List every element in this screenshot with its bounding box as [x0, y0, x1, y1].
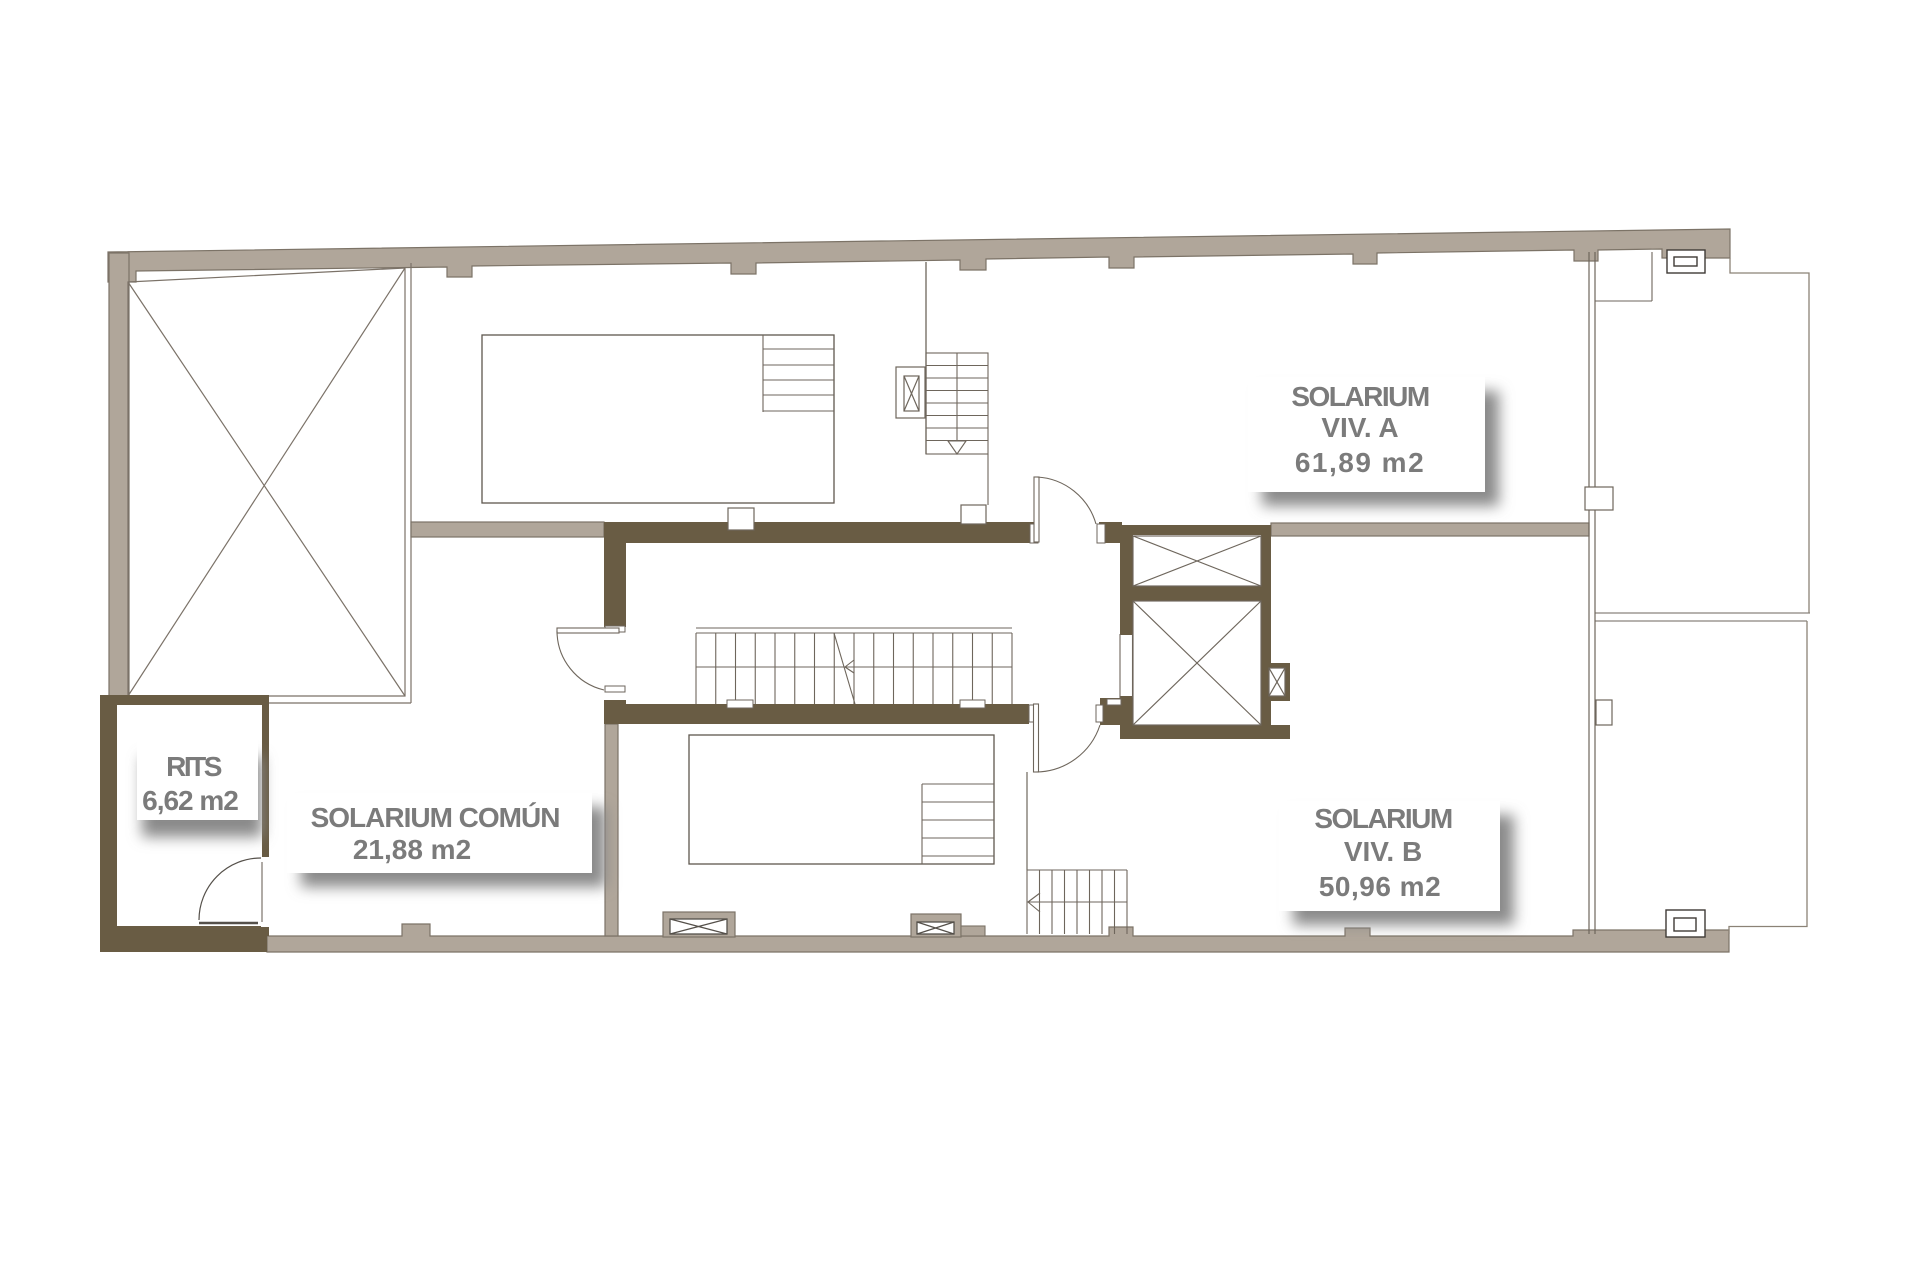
svg-text:61,89 m2: 61,89 m2	[1295, 447, 1425, 478]
svg-text:SOLARIUM COMÚN: SOLARIUM COMÚN	[311, 802, 560, 833]
svg-text:VIV. A: VIV. A	[1321, 412, 1398, 443]
svg-text:VIV. B: VIV. B	[1344, 836, 1422, 867]
svg-text:50,96 m2: 50,96 m2	[1319, 871, 1441, 902]
svg-text:6,62 m2: 6,62 m2	[142, 785, 238, 816]
svg-text:21,88 m2: 21,88 m2	[353, 834, 471, 865]
svg-text:SOLARIUM: SOLARIUM	[1291, 381, 1429, 412]
svg-text:SOLARIUM: SOLARIUM	[1314, 803, 1452, 834]
svg-text:RITS: RITS	[166, 751, 222, 782]
